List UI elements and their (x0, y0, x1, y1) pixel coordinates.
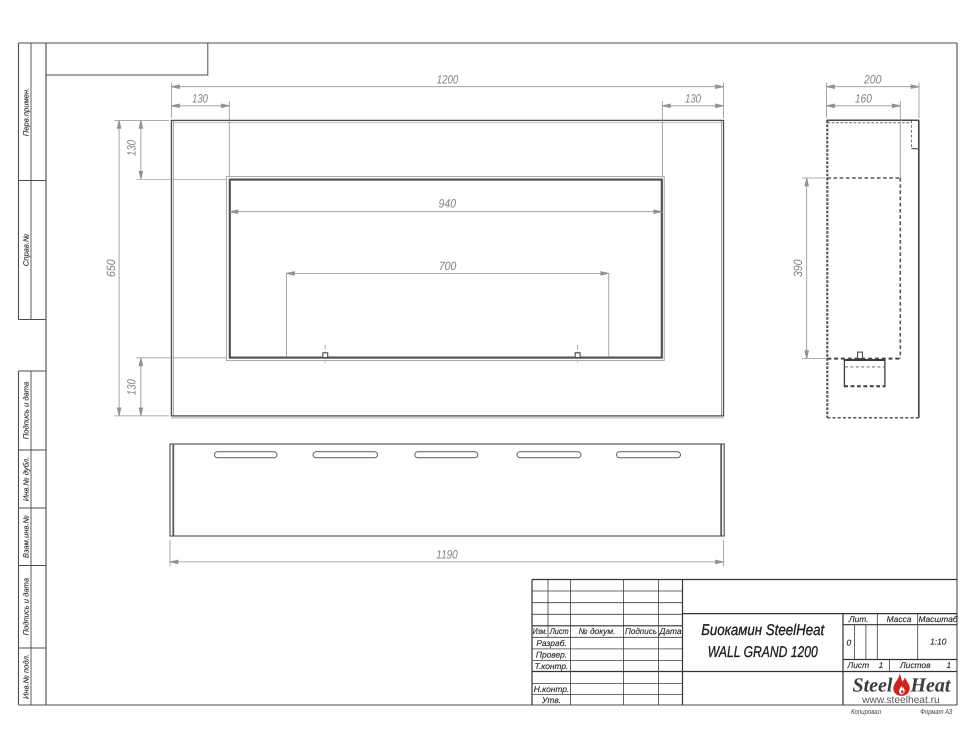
svg-text:Изм.: Изм. (533, 626, 548, 636)
svg-text:Н.контр.: Н.контр. (534, 684, 569, 694)
svg-text:0: 0 (846, 637, 851, 647)
svg-text:Формат А3: Формат А3 (920, 707, 952, 716)
svg-text:1:10: 1:10 (930, 637, 947, 647)
svg-text:Подпись: Подпись (625, 626, 657, 636)
svg-text:Heat: Heat (910, 675, 952, 697)
svg-text:130: 130 (685, 91, 701, 105)
svg-text:Биокамин SteelHeat: Биокамин SteelHeat (701, 622, 825, 639)
svg-text:Перв.примен.: Перв.примен. (22, 88, 31, 136)
svg-text:1: 1 (879, 660, 884, 670)
svg-text:Листов: Листов (899, 660, 931, 670)
svg-text:Разраб.: Разраб. (536, 638, 566, 648)
svg-text:Масса: Масса (887, 614, 912, 624)
svg-text:Дата: Дата (658, 626, 681, 636)
svg-text:940: 940 (439, 197, 457, 211)
svg-text:1200: 1200 (437, 73, 459, 87)
svg-text:Steel: Steel (853, 675, 893, 697)
svg-text:www.steelheat.ru: www.steelheat.ru (861, 695, 940, 706)
svg-text:Провер.: Провер. (536, 650, 567, 660)
svg-text:Масштаб: Масштаб (918, 614, 957, 624)
svg-text:Утв.: Утв. (541, 695, 561, 705)
svg-text:Лист: Лист (549, 626, 569, 636)
svg-text:Т.контр.: Т.контр. (535, 661, 569, 671)
svg-text:130: 130 (192, 91, 208, 105)
svg-text:Лист: Лист (847, 660, 870, 670)
svg-text:Справ.№: Справ.№ (22, 234, 31, 266)
svg-text:Копировал: Копировал (851, 707, 881, 716)
svg-text:700: 700 (439, 259, 457, 273)
svg-text:Лит.: Лит. (848, 614, 869, 624)
svg-text:Взам.инв.№: Взам.инв.№ (22, 515, 31, 558)
svg-text:WALL GRAND 1200: WALL GRAND 1200 (708, 644, 818, 661)
svg-text:390: 390 (791, 259, 805, 277)
svg-text:130: 130 (125, 379, 139, 395)
svg-text:Инв.№ дубл.: Инв.№ дубл. (22, 457, 31, 502)
svg-text:Подпись и дата: Подпись и дата (22, 578, 31, 635)
svg-text:200: 200 (863, 73, 882, 87)
svg-text:Инв.№ подл.: Инв.№ подл. (22, 654, 31, 699)
svg-text:1: 1 (946, 660, 951, 670)
svg-text:Подпись и дата: Подпись и дата (22, 382, 31, 439)
svg-text:1190: 1190 (436, 548, 458, 562)
svg-text:130: 130 (125, 140, 139, 156)
svg-text:160: 160 (855, 91, 872, 105)
svg-text:№ докум.: № докум. (579, 626, 616, 636)
svg-text:650: 650 (104, 259, 118, 277)
